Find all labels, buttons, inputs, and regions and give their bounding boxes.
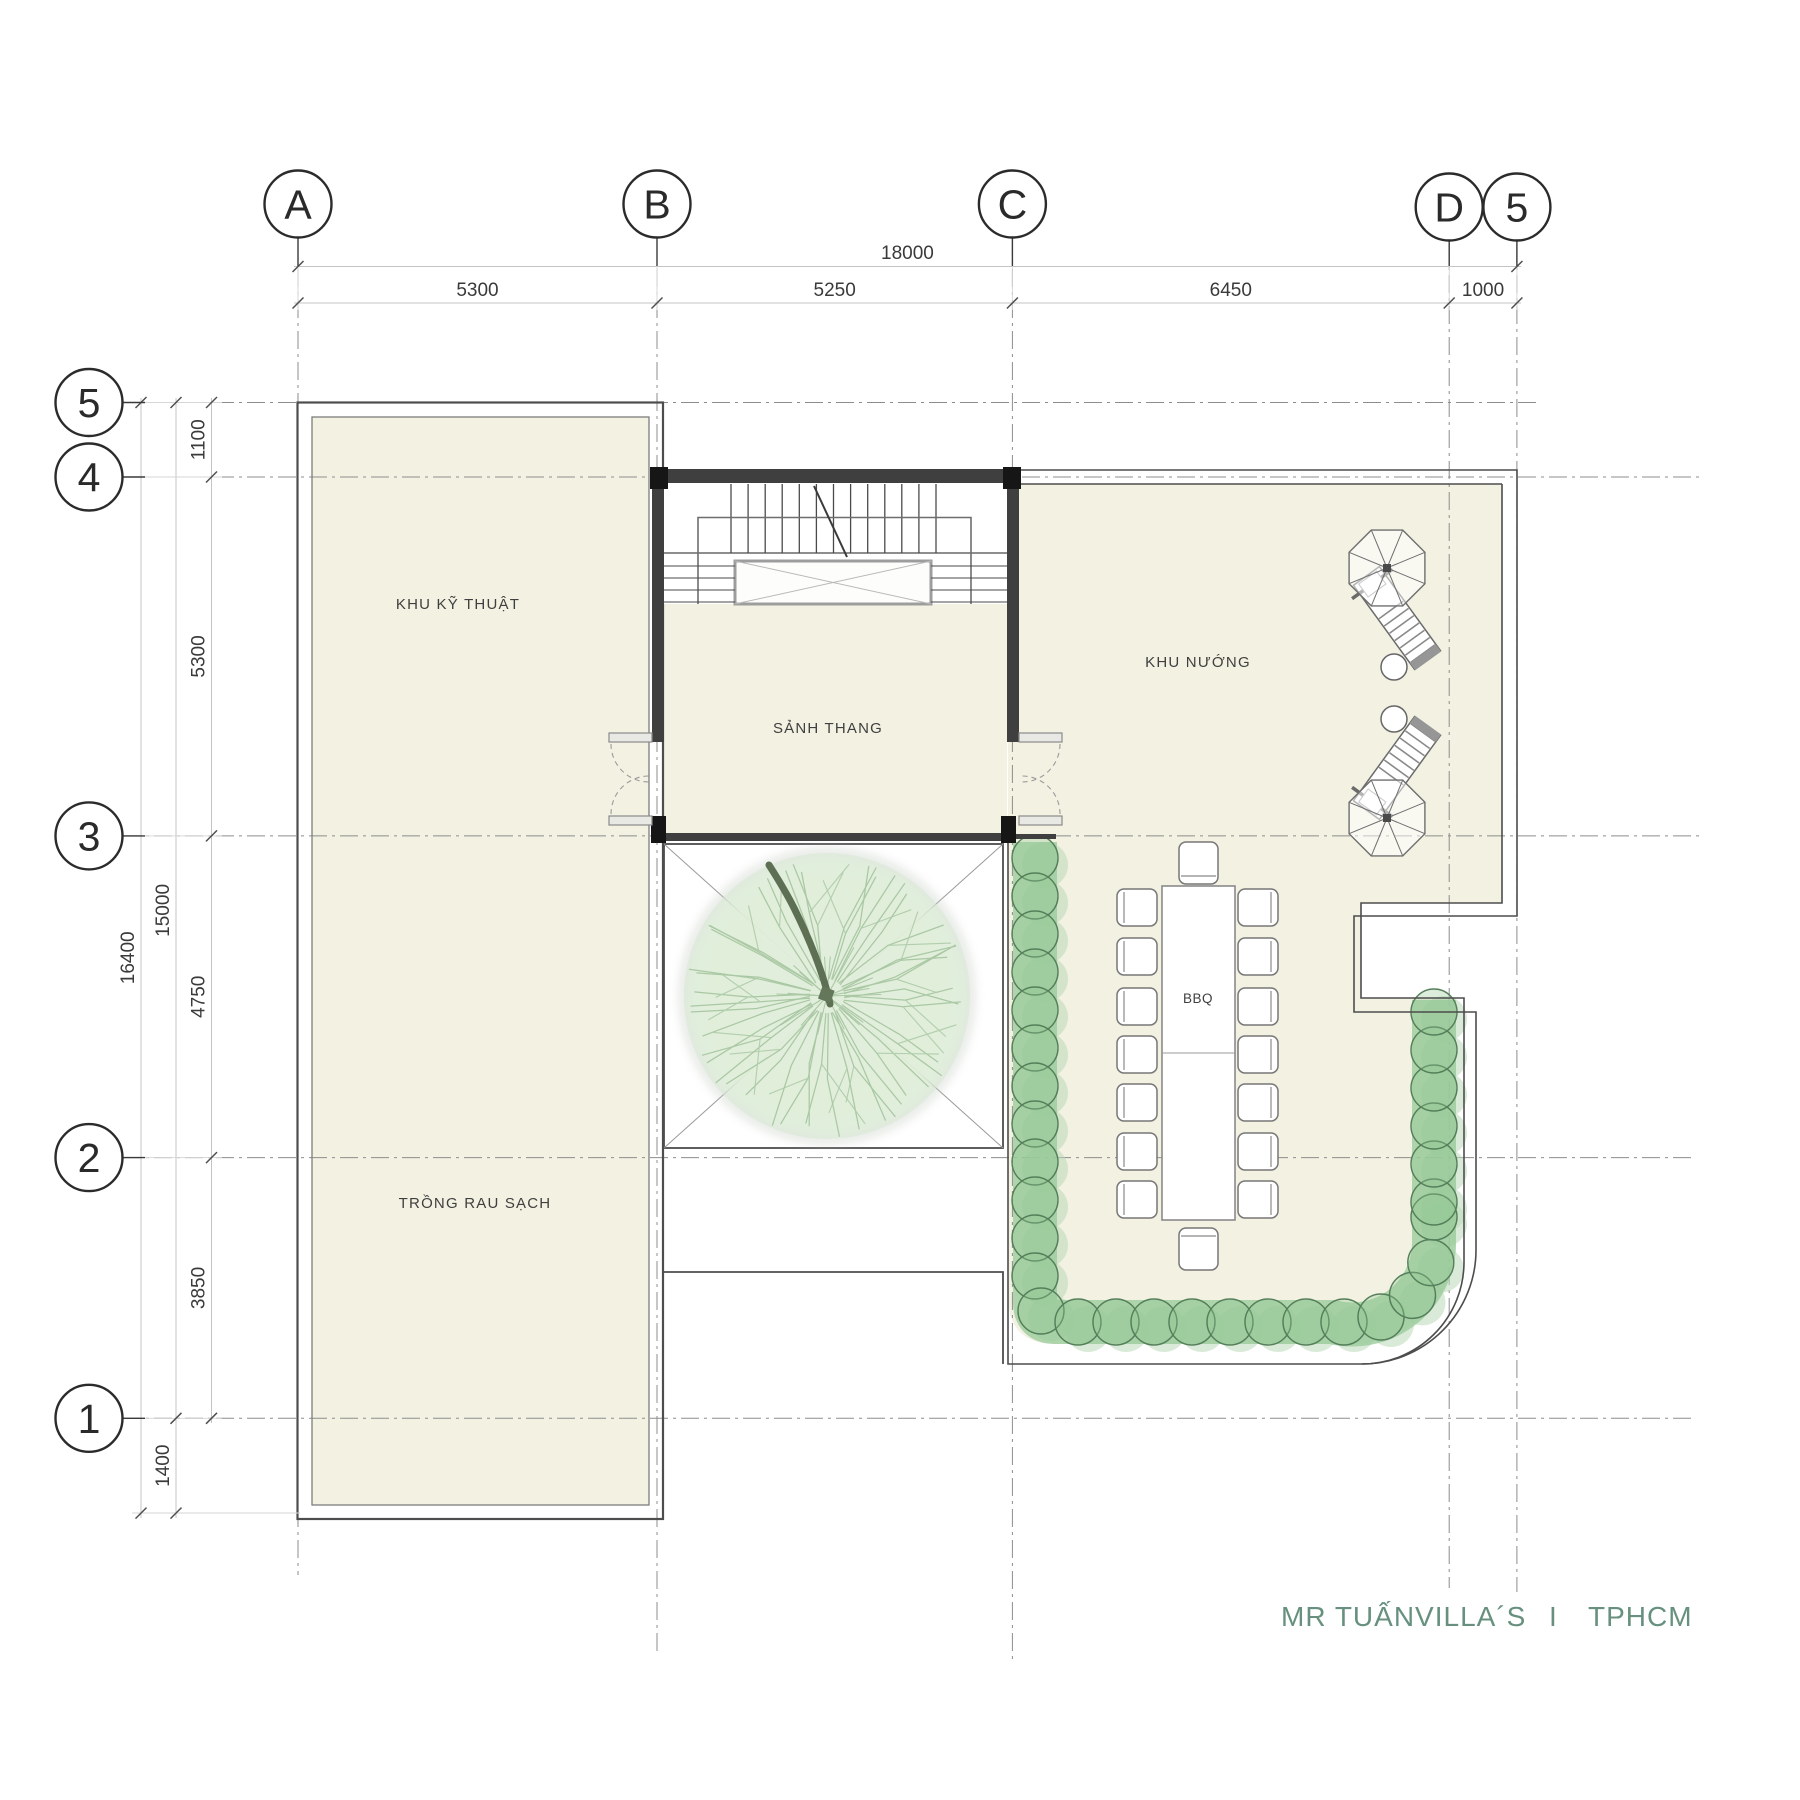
- svg-text:1100: 1100: [189, 419, 210, 460]
- svg-text:16400: 16400: [118, 931, 139, 984]
- svg-text:1000: 1000: [1462, 280, 1504, 301]
- svg-text:B: B: [643, 182, 670, 228]
- svg-text:TRỒNG RAU SẠCH: TRỒNG RAU SẠCH: [399, 1194, 552, 1212]
- svg-text:TPHCM: TPHCM: [1588, 1601, 1693, 1632]
- svg-text:5: 5: [1505, 185, 1528, 231]
- svg-text:KHU NƯỚNG: KHU NƯỚNG: [1145, 654, 1251, 671]
- svg-text:6450: 6450: [1210, 280, 1252, 301]
- svg-text:15000: 15000: [153, 884, 174, 937]
- svg-text:A: A: [284, 182, 312, 228]
- svg-text:3850: 3850: [189, 1267, 210, 1309]
- svg-text:SẢNH THANG: SẢNH THANG: [773, 720, 883, 737]
- svg-text:4: 4: [78, 455, 101, 501]
- svg-text:5250: 5250: [814, 280, 856, 301]
- svg-text:C: C: [998, 182, 1028, 228]
- svg-text:4750: 4750: [189, 976, 210, 1018]
- svg-text:5300: 5300: [456, 280, 498, 301]
- svg-text:I: I: [1549, 1601, 1558, 1632]
- svg-text:5300: 5300: [189, 635, 210, 677]
- svg-text:D: D: [1434, 185, 1464, 231]
- svg-text:MR TUẤNVILLA´S: MR TUẤNVILLA´S: [1281, 1601, 1526, 1632]
- svg-text:18000: 18000: [881, 243, 934, 264]
- svg-text:1400: 1400: [153, 1445, 174, 1487]
- svg-text:1: 1: [78, 1396, 101, 1442]
- svg-text:KHU KỸ THUẬT: KHU KỸ THUẬT: [396, 596, 520, 613]
- svg-text:5: 5: [78, 380, 101, 426]
- svg-text:3: 3: [78, 813, 101, 859]
- svg-text:2: 2: [78, 1135, 101, 1181]
- svg-text:BBQ: BBQ: [1183, 991, 1213, 1006]
